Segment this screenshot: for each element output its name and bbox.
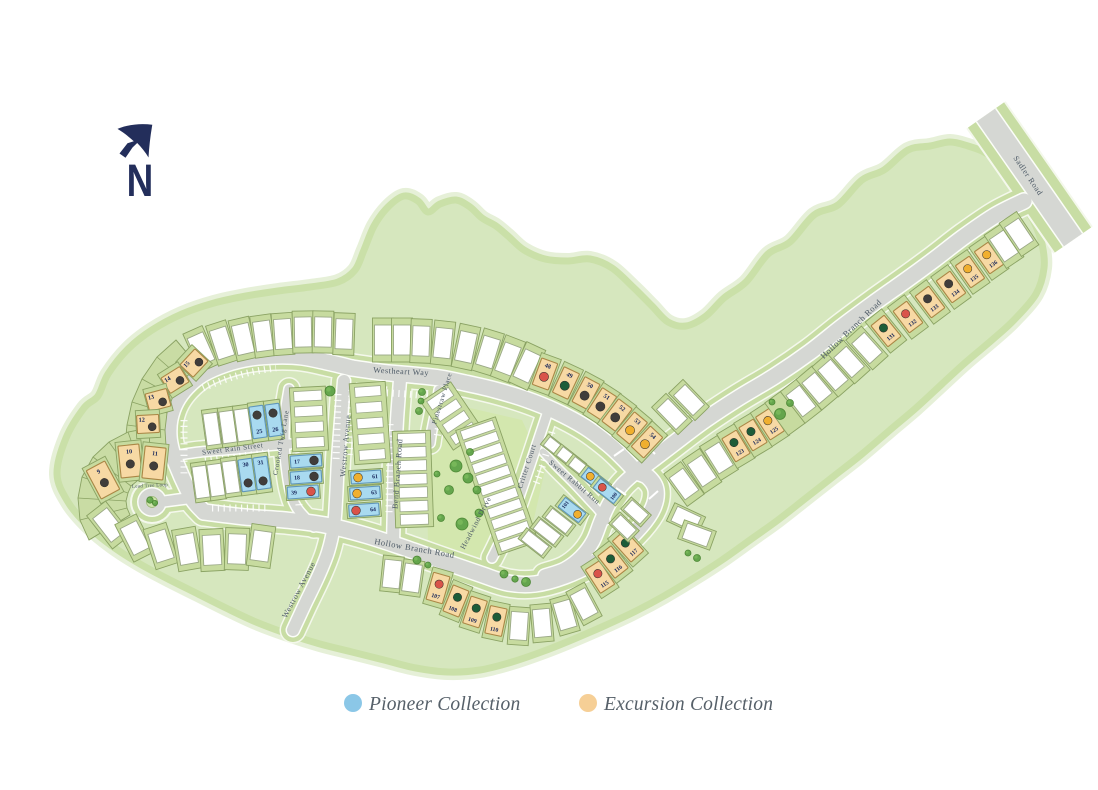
svg-text:64: 64: [370, 507, 376, 513]
svg-text:Excursion Collection: Excursion Collection: [603, 694, 773, 715]
svg-text:18: 18: [294, 475, 300, 481]
svg-text:31: 31: [257, 459, 264, 467]
svg-text:11: 11: [152, 450, 159, 458]
svg-text:N: N: [127, 156, 154, 206]
svg-text:17: 17: [294, 459, 300, 465]
svg-text:Pioneer Collection: Pioneer Collection: [368, 694, 520, 715]
svg-text:25: 25: [256, 428, 263, 436]
svg-text:10: 10: [126, 448, 133, 456]
svg-text:39: 39: [291, 490, 297, 496]
svg-text:61: 61: [372, 474, 378, 480]
svg-text:12: 12: [139, 417, 146, 424]
svg-text:63: 63: [371, 490, 377, 496]
svg-text:30: 30: [242, 461, 249, 469]
